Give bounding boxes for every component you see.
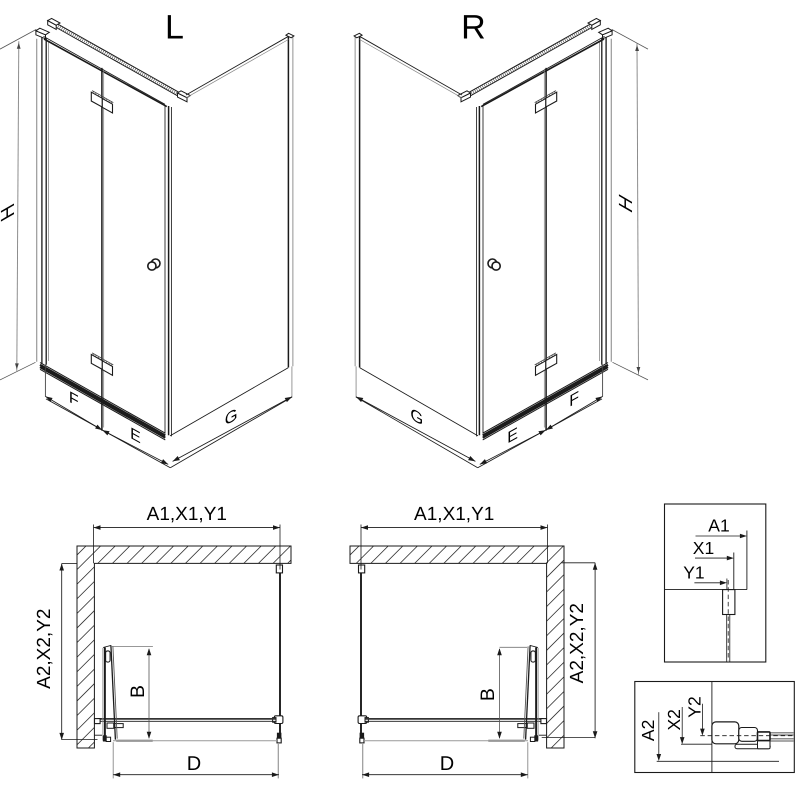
svg-text:B: B [127, 685, 149, 698]
svg-text:R: R [461, 9, 486, 47]
svg-text:A1,X1,Y1: A1,X1,Y1 [147, 504, 227, 525]
svg-text:Y2: Y2 [684, 696, 704, 717]
svg-text:A2: A2 [638, 720, 658, 741]
svg-text:A2,X2,Y2: A2,X2,Y2 [34, 609, 55, 689]
svg-text:L: L [165, 9, 184, 47]
svg-text:B: B [477, 688, 499, 701]
svg-text:Y1: Y1 [683, 563, 704, 583]
svg-text:D: D [187, 753, 201, 775]
svg-text:X1: X1 [693, 538, 714, 558]
svg-text:A2,X2,Y2: A2,X2,Y2 [567, 603, 588, 683]
svg-text:A1: A1 [708, 516, 729, 536]
svg-text:X2: X2 [664, 709, 684, 730]
svg-text:D: D [440, 753, 454, 775]
svg-text:A1,X1,Y1: A1,X1,Y1 [414, 504, 494, 525]
